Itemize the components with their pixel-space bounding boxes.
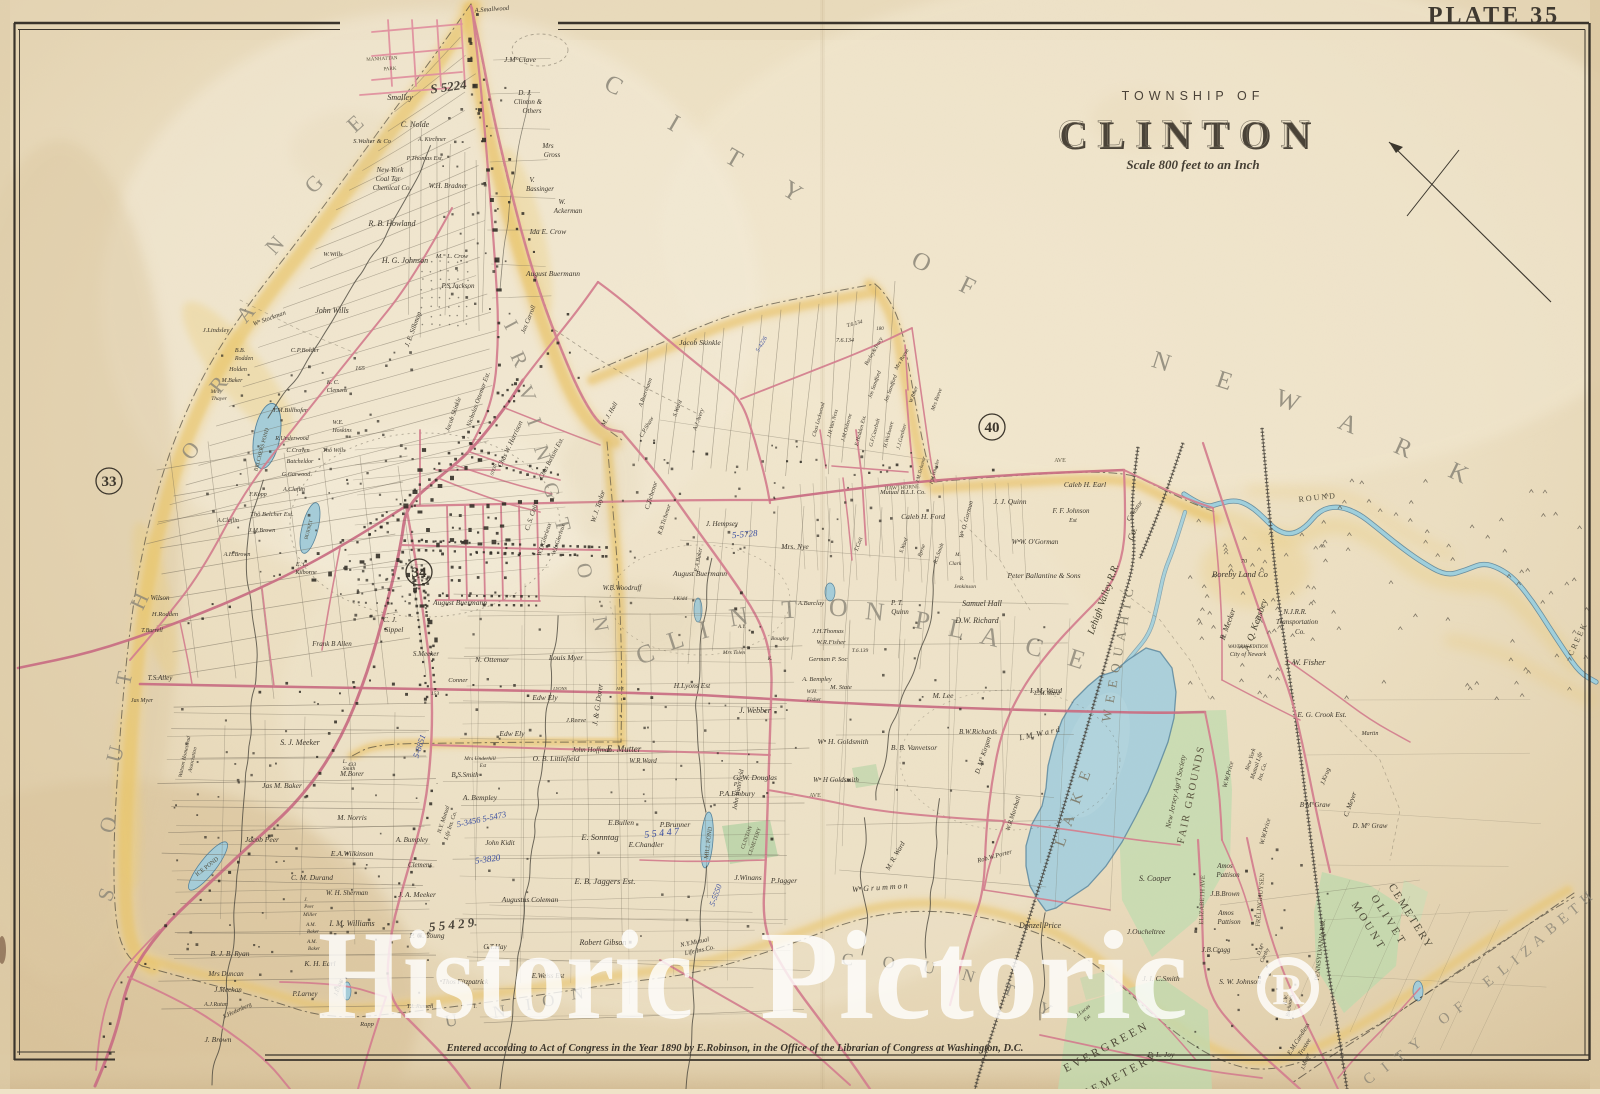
- svg-text:New York: New York: [376, 166, 405, 174]
- svg-text:40: 40: [985, 420, 1000, 436]
- svg-text:AVE: AVE: [809, 793, 821, 799]
- svg-text:E.A.Wilkinson: E.A.Wilkinson: [330, 849, 374, 858]
- svg-text:Coal Tar: Coal Tar: [376, 175, 401, 183]
- svg-text:Clinton &: Clinton &: [514, 98, 543, 106]
- svg-text:W.R.Ward: W.R.Ward: [629, 757, 657, 765]
- svg-text:Conner: Conner: [448, 677, 468, 684]
- svg-text:Bassinger: Bassinger: [526, 185, 554, 193]
- svg-text:R. B. Howland: R. B. Howland: [367, 219, 416, 228]
- svg-text:Wⁿ H. Goldsmith: Wⁿ H. Goldsmith: [818, 737, 869, 746]
- svg-text:Frank B Allen: Frank B Allen: [311, 640, 352, 648]
- svg-text:A.M.: A.M.: [305, 923, 316, 928]
- svg-text:P.Larney: P.Larney: [292, 990, 319, 998]
- svg-text:Fisher: Fisher: [806, 697, 822, 703]
- svg-text:W.H.: W.H.: [807, 689, 818, 695]
- svg-text:Historic: Historic: [318, 906, 693, 1046]
- svg-text:Hoskins: Hoskins: [331, 428, 352, 434]
- svg-text:L.: L.: [342, 759, 347, 765]
- svg-text:J.Kidd: J.Kidd: [673, 596, 688, 602]
- svg-text:K. C.: K. C.: [326, 380, 340, 386]
- svg-text:M. Lee: M. Lee: [932, 691, 954, 700]
- svg-text:A. Bempley: A. Bempley: [462, 793, 498, 802]
- svg-text:C. J.: C. J.: [383, 615, 397, 624]
- svg-text:F. F. Johnson: F. F. Johnson: [1051, 507, 1090, 515]
- svg-text:F.Kopp: F.Kopp: [248, 492, 266, 498]
- svg-text:J.M°Clave: J.M°Clave: [504, 55, 537, 64]
- svg-text:Kilborne: Kilborne: [294, 570, 317, 576]
- svg-text:Sippel: Sippel: [385, 625, 404, 634]
- svg-text:V.: V.: [529, 176, 534, 184]
- svg-text:M. Norris: M. Norris: [336, 813, 367, 822]
- svg-text:S. W. Johnson: S. W. Johnson: [1219, 977, 1261, 986]
- svg-text:John Hoffman: John Hoffman: [572, 746, 612, 754]
- svg-text:Louis Myer: Louis Myer: [548, 653, 583, 662]
- svg-text:O: O: [828, 593, 848, 623]
- svg-text:E. Sonntag: E. Sonntag: [580, 832, 618, 842]
- svg-text:34: 34: [412, 565, 428, 581]
- svg-text:August Buermann: August Buermann: [525, 269, 580, 278]
- svg-text:S. Cooper: S. Cooper: [1139, 874, 1172, 883]
- svg-text:P. T.: P. T.: [890, 599, 903, 607]
- svg-text:433: 433: [348, 761, 357, 768]
- svg-text:J.Mechan: J.Mechan: [214, 986, 242, 994]
- svg-text:H. G. Johnson: H. G. Johnson: [381, 256, 428, 265]
- svg-text:T.6.139: T.6.139: [852, 648, 869, 654]
- svg-text:B.W.Richards: B.W.Richards: [959, 728, 997, 736]
- svg-text:WAVERLY STATION: WAVERLY STATION: [1228, 645, 1269, 650]
- svg-text:Co.: Co.: [1295, 628, 1305, 636]
- svg-text:W.Wills: W.Wills: [323, 251, 343, 258]
- svg-text:Mrs Underhill: Mrs Underhill: [463, 756, 496, 762]
- svg-text:A.Y.: A.Y.: [737, 625, 746, 630]
- svg-text:LYONS: LYONS: [552, 686, 567, 691]
- svg-text:J. W. Fisher: J. W. Fisher: [1285, 657, 1326, 667]
- svg-text:A.Claflin: A.Claflin: [216, 517, 239, 524]
- svg-text:153: 153: [431, 691, 440, 697]
- svg-text:C.Craven: C.Craven: [286, 448, 309, 454]
- svg-text:J.M.Brown: J.M.Brown: [249, 528, 275, 534]
- svg-text:70: 70: [1241, 559, 1247, 565]
- svg-text:Mrs Tolen: Mrs Tolen: [722, 650, 746, 656]
- svg-text:B. B. Vanvetsor: B. B. Vanvetsor: [891, 743, 937, 752]
- svg-text:B.B.: B.B.: [235, 348, 245, 354]
- svg-text:Clemens: Clemens: [327, 388, 348, 394]
- svg-text:A.Claflin: A.Claflin: [282, 486, 305, 493]
- svg-text:B M°Graw: B M°Graw: [1300, 801, 1331, 809]
- svg-text:J.B.Brown: J.B.Brown: [1210, 890, 1240, 898]
- svg-text:Edw Ely: Edw Ely: [531, 693, 558, 702]
- svg-text:J.Reeve: J.Reeve: [566, 717, 586, 724]
- svg-text:Clemens: Clemens: [408, 861, 432, 869]
- svg-text:M.° L. Crow: M.° L. Crow: [435, 253, 469, 260]
- svg-text:W.R.Fisher: W.R.Fisher: [816, 639, 845, 646]
- svg-text:W.E.: W.E.: [332, 420, 343, 426]
- svg-text:Jacob̌ Skinkle: Jacob̌ Skinkle: [679, 337, 721, 347]
- svg-text:Augustus Coleman: Augustus Coleman: [501, 895, 559, 904]
- svg-text:TOWNSHIP OF: TOWNSHIP OF: [1122, 89, 1265, 103]
- svg-text:D. J.: D. J.: [517, 89, 532, 97]
- svg-text:Wilson: Wilson: [150, 594, 170, 602]
- svg-text:Jas M. Baker: Jas M. Baker: [262, 781, 302, 790]
- svg-text:J.B.Cragg: J.B.Cragg: [1202, 946, 1231, 954]
- svg-text:E. C.: E. C.: [295, 562, 308, 568]
- svg-text:Jenkinson: Jenkinson: [954, 584, 976, 590]
- svg-text:A.J.Rutan: A.J.Rutan: [203, 1002, 228, 1008]
- svg-text:Peter Ballantine & Sons: Peter Ballantine & Sons: [1006, 571, 1080, 580]
- svg-text:Wⁿ H Goldsmith: Wⁿ H Goldsmith: [813, 776, 859, 784]
- svg-text:Mrs. Nye: Mrs. Nye: [780, 542, 809, 551]
- svg-text:M. State: M. State: [829, 684, 852, 691]
- svg-text:J. Brown: J. Brown: [205, 1035, 232, 1044]
- svg-text:Pattison: Pattison: [1215, 871, 1240, 879]
- svg-text:B.S.Smith: B.S.Smith: [451, 771, 479, 779]
- svg-text:Clark: Clark: [949, 561, 962, 567]
- svg-text:S.Walter & Co: S.Walter & Co: [353, 138, 392, 145]
- svg-text:A. Bempley: A. Bempley: [801, 676, 832, 683]
- svg-text:Quinn: Quinn: [891, 608, 909, 616]
- svg-text:E.Bullen: E.Bullen: [607, 818, 634, 827]
- svg-text:Batcheldor: Batcheldor: [287, 459, 314, 465]
- svg-text:J.Lindsley: J.Lindsley: [203, 327, 230, 334]
- svg-text:W.: W.: [559, 198, 566, 206]
- svg-text:165: 165: [355, 365, 366, 372]
- svg-text:Thayer: Thayer: [211, 396, 227, 402]
- svg-text:P.Jagger: P.Jagger: [770, 876, 797, 885]
- svg-text:D. M° Graw: D. M° Graw: [1352, 822, 1388, 830]
- svg-text:Est: Est: [479, 764, 487, 769]
- svg-text:N. Ottemar: N. Ottemar: [474, 655, 509, 664]
- svg-text:T.Burrell: T.Burrell: [141, 628, 163, 634]
- svg-text:J. Webber: J. Webber: [739, 706, 772, 715]
- svg-text:Others: Others: [522, 107, 541, 115]
- svg-text:W.H. Bradner: W.H. Bradner: [429, 182, 468, 190]
- svg-text:K.: K.: [767, 657, 773, 662]
- svg-text:PLATE 35: PLATE 35: [1428, 3, 1560, 29]
- svg-text:PARK: PARK: [383, 67, 397, 73]
- svg-text:J. Hempsey: J. Hempsey: [706, 520, 739, 528]
- svg-text:Miller: Miller: [302, 912, 318, 918]
- svg-text:Mrs: Mrs: [210, 389, 220, 395]
- svg-text:Holden: Holden: [228, 367, 247, 373]
- svg-text:J.H.Thomas: J.H.Thomas: [812, 628, 844, 635]
- svg-text:Scale 800 feet to an Inch: Scale 800 feet to an Inch: [1126, 157, 1259, 172]
- svg-text:August Buermann: August Buermann: [432, 598, 487, 607]
- svg-text:M.: M.: [954, 553, 960, 558]
- svg-text:AVE: AVE: [1054, 458, 1066, 464]
- svg-text:A.Barclay: A.Barclay: [797, 600, 824, 607]
- svg-text:L.M.Ward: L.M.Ward: [1033, 690, 1061, 697]
- svg-text:D.W. Richard: D.W. Richard: [954, 616, 999, 625]
- svg-text:C. M. Durand: C. M. Durand: [291, 873, 333, 882]
- svg-text:M.Baker: M.Baker: [221, 378, 243, 384]
- svg-text:O. B. Littlefield: O. B. Littlefield: [533, 754, 580, 763]
- svg-text:A. Kirchner: A. Kirchner: [417, 137, 447, 143]
- svg-text:J. J. Quinn: J. J. Quinn: [994, 497, 1027, 506]
- svg-text:Caleb H. Ford: Caleb H. Ford: [901, 512, 945, 521]
- svg-text:C.P.Bolder: C.P.Bolder: [291, 347, 320, 354]
- svg-text:180: 180: [876, 327, 884, 332]
- svg-text:A. Bumpley: A. Bumpley: [395, 836, 429, 844]
- svg-text:R.Underwood: R.Underwood: [274, 436, 309, 442]
- svg-text:T.S.Alley: T.S.Alley: [148, 674, 174, 682]
- svg-text:H.Rodden: H.Rodden: [151, 611, 178, 618]
- svg-text:Amos: Amos: [1217, 909, 1234, 917]
- svg-text:Amos: Amos: [1216, 862, 1233, 870]
- svg-text:Gross: Gross: [544, 151, 561, 159]
- svg-text:T: T: [780, 594, 798, 624]
- svg-text:Edw Ely: Edw Ely: [498, 729, 525, 738]
- svg-text:R.: R.: [959, 577, 964, 582]
- svg-text:B. J. B. Ryan: B. J. B. Ryan: [210, 949, 249, 958]
- svg-text:7.6.134: 7.6.134: [836, 337, 854, 344]
- svg-text:A.H.Brown: A.H.Brown: [223, 552, 251, 558]
- svg-text:A.M.: A.M.: [306, 940, 317, 945]
- svg-text:J.Winans: J.Winans: [734, 873, 761, 882]
- svg-text:WⁿW. O'Gorman: WⁿW. O'Gorman: [1012, 538, 1059, 546]
- svg-text:W. H. Sherman: W. H. Sherman: [326, 889, 369, 897]
- svg-text:Smalley: Smalley: [387, 93, 413, 102]
- svg-text:E. L. Joy: E. L. Joy: [1147, 1050, 1175, 1059]
- svg-text:H.Lyons Est: H.Lyons Est: [673, 681, 711, 690]
- svg-text:Mutual B.L.I. Co.: Mutual B.L.I. Co.: [879, 489, 926, 496]
- svg-text:N.J.R.R.: N.J.R.R.: [1282, 608, 1307, 616]
- svg-text:J. A. Meeker: J. A. Meeker: [398, 890, 436, 899]
- svg-text:Boreby Land Co: Boreby Land Co: [1212, 569, 1268, 579]
- svg-text:Est: Est: [1068, 518, 1077, 524]
- svg-text:Peer: Peer: [303, 905, 313, 910]
- svg-text:P.S.Jackson: P.S.Jackson: [441, 282, 475, 290]
- svg-text:P.Thomas Est.: P.Thomas Est.: [406, 155, 444, 162]
- svg-text:T.M.Billhofer: T.M.Billhofer: [273, 407, 308, 414]
- svg-text:J.: J.: [304, 898, 307, 903]
- svg-text:Pictoric: Pictoric: [760, 906, 1188, 1046]
- svg-text:E.Chandler: E.Chandler: [628, 840, 664, 849]
- svg-text:Thǒ Wills: Thǒ Wills: [323, 448, 347, 454]
- svg-text:N: N: [864, 596, 886, 627]
- svg-text:E. G. Crook Est.: E. G. Crook Est.: [1296, 710, 1346, 719]
- svg-text:C. Nolde: C. Nolde: [401, 120, 430, 129]
- svg-text:Ackerman: Ackerman: [553, 207, 583, 215]
- svg-text:Samuel Hall: Samuel Hall: [962, 599, 1003, 608]
- svg-text:R: R: [1272, 965, 1305, 1014]
- svg-text:Pattison: Pattison: [1216, 918, 1241, 926]
- svg-text:Martin: Martin: [1361, 731, 1379, 737]
- svg-text:E. B. Jaggers Est.: E. B. Jaggers Est.: [574, 876, 636, 886]
- svg-text:John Kidit: John Kidit: [485, 839, 515, 847]
- svg-text:Jacob Peer: Jacob Peer: [245, 835, 279, 844]
- svg-text:S. J. Meeker: S. J. Meeker: [280, 738, 320, 747]
- svg-text:CLINTON: CLINTON: [1058, 111, 1321, 156]
- svg-text:Mrs: Mrs: [541, 142, 554, 150]
- svg-text:Transportation: Transportation: [1276, 618, 1319, 626]
- svg-text:G.Garwood: G.Garwood: [282, 472, 312, 478]
- svg-text:Jas Myer: Jas Myer: [131, 698, 154, 704]
- svg-text:German P. Soc: German P. Soc: [809, 656, 848, 663]
- svg-text:AVE: AVE: [615, 686, 624, 691]
- svg-text:Ida E. Crow: Ida E. Crow: [529, 227, 567, 236]
- svg-text:Thǒ Belcher Est.: Thǒ Belcher Est.: [250, 511, 294, 518]
- svg-text:33: 33: [102, 474, 117, 490]
- svg-text:City of Newark: City of Newark: [1230, 651, 1267, 658]
- svg-text:S.Meeker: S.Meeker: [413, 650, 440, 658]
- svg-text:Bougley: Bougley: [771, 636, 790, 642]
- svg-text:W.B.Woodruff: W.B.Woodruff: [603, 584, 643, 592]
- svg-text:Mrs Duncan: Mrs Duncan: [207, 970, 244, 978]
- svg-text:Rodden: Rodden: [234, 356, 253, 362]
- svg-text:Caleb H. Earl: Caleb H. Earl: [1064, 480, 1106, 489]
- svg-text:John Wills: John Wills: [315, 306, 349, 315]
- svg-text:M.Borer: M.Borer: [339, 770, 364, 778]
- svg-text:Chemical Co.: Chemical Co.: [373, 184, 412, 192]
